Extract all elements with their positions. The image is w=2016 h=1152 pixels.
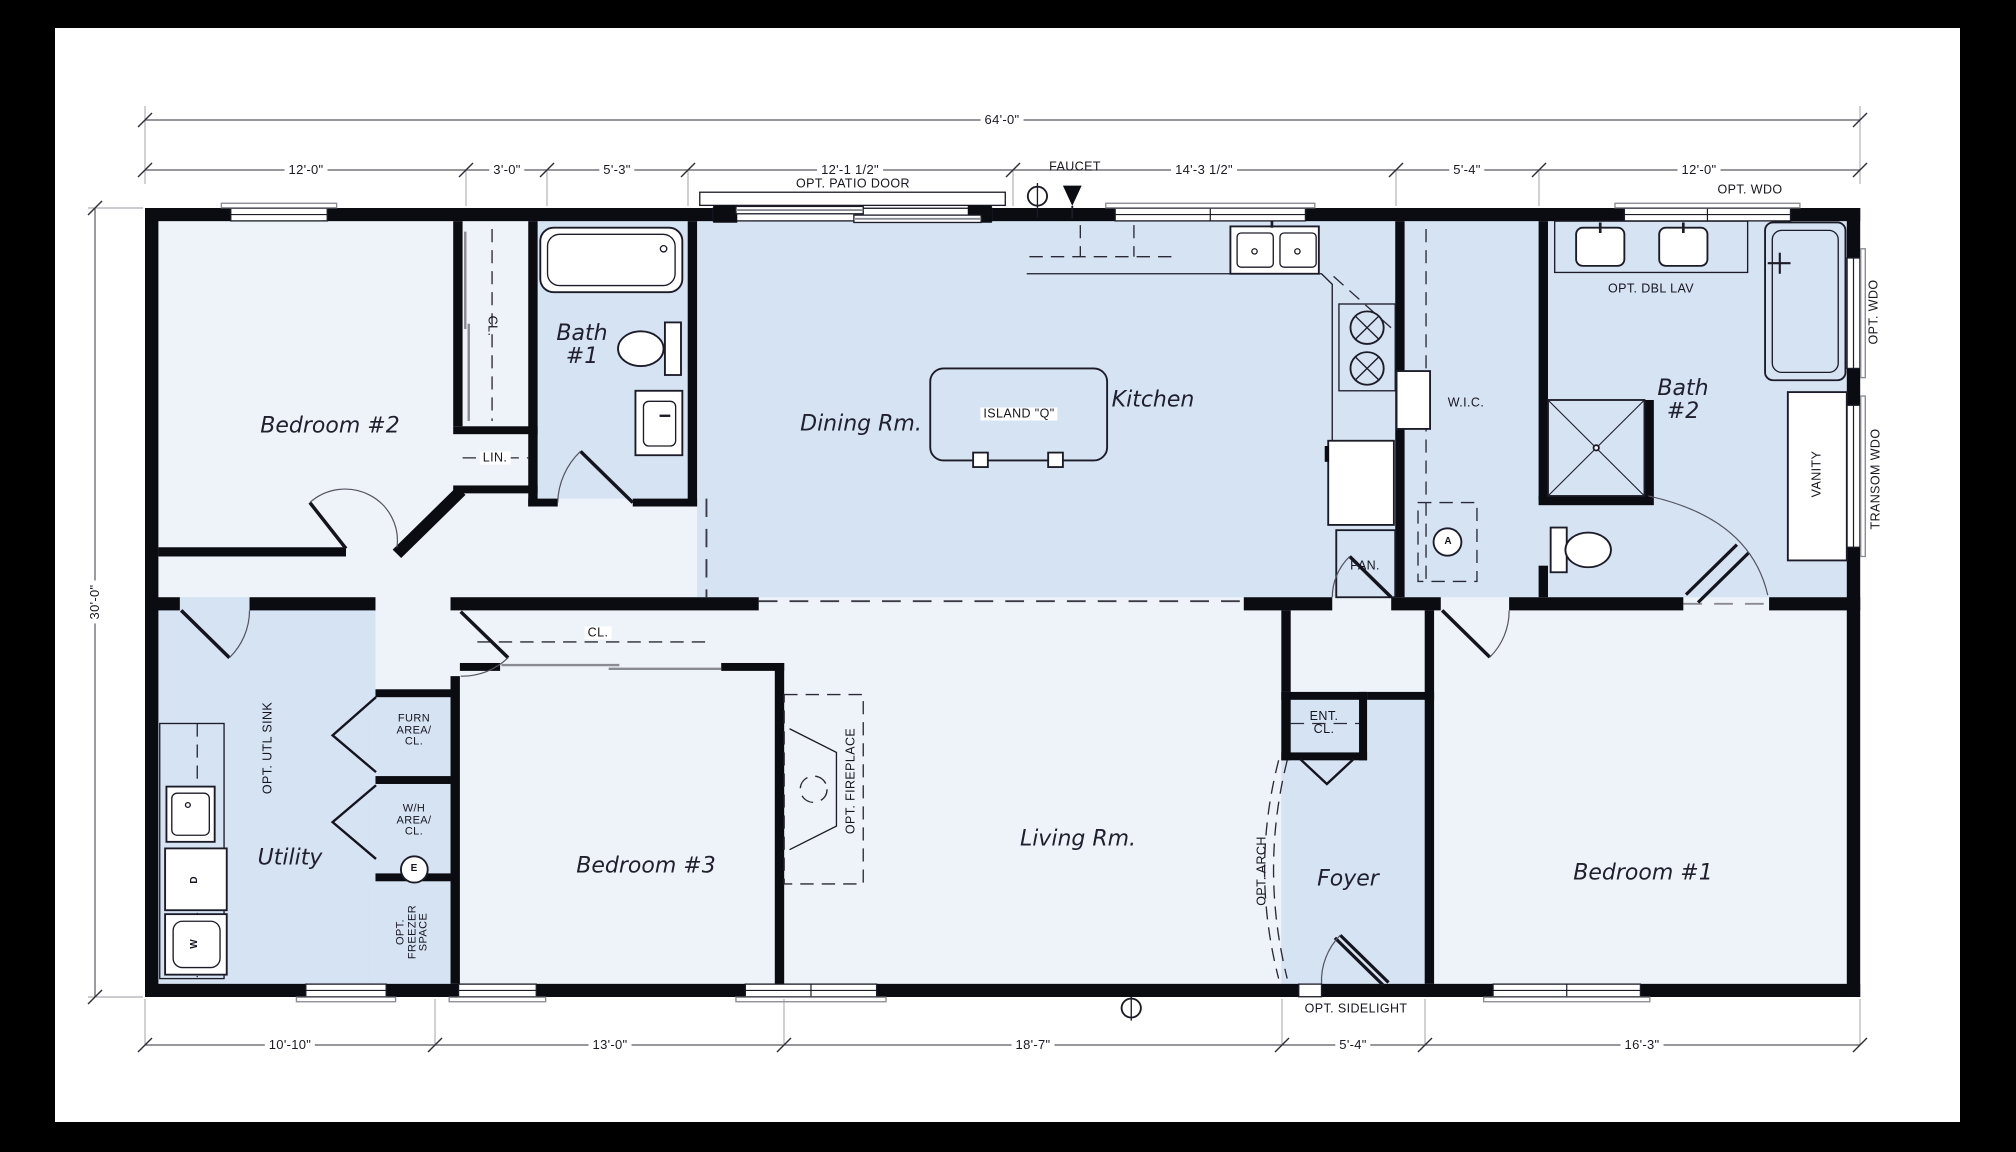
entry-closet-label: ENT. CL. <box>1310 710 1339 736</box>
opt-patio-door-label: OPT. PATIO DOOR <box>796 177 910 190</box>
dim-bottom-3: 18'-7" <box>1012 1038 1055 1052</box>
dryer-letter: D <box>190 876 201 883</box>
room-label-foyer: Foyer <box>1317 867 1379 890</box>
room-label-bath1: Bath #1 <box>556 322 607 368</box>
room-label-bedroom2: Bedroom #2 <box>260 414 399 437</box>
dim-top-7: 12'-0" <box>1678 163 1721 177</box>
wic-label: W.I.C. <box>1448 396 1484 409</box>
dim-top-1: 12'-0" <box>285 163 328 177</box>
linen-label: LIN. <box>480 451 511 464</box>
dim-top-6: 5'-4" <box>1449 163 1484 177</box>
opt-dbl-lav-label: OPT. DBL LAV <box>1608 282 1694 295</box>
opt-window-right-label: OPT. WDO <box>1867 279 1880 344</box>
furnace-area-label: FURN AREA/ CL. <box>396 714 431 749</box>
room-label-utility: Utility <box>258 846 323 869</box>
opt-sidelight-label: OPT. SIDELIGHT <box>1305 1002 1408 1015</box>
dim-bottom-5: 16'-3" <box>1621 1038 1664 1052</box>
closet-bedroom2-label: CL. <box>485 316 498 337</box>
dim-bottom-1: 10'-10" <box>265 1038 315 1052</box>
patio-door <box>700 192 1006 223</box>
faucet-label: FAUCET <box>1049 160 1101 173</box>
opt-arch-label: OPT. ARCH <box>1255 836 1268 906</box>
room-label-bedroom3: Bedroom #3 <box>576 854 715 877</box>
floorplan-page: 64'-0" 12'-0" 3'-0" 5'-3" 12'-1 1/2" 14'… <box>0 0 2016 1152</box>
opt-window-top-label: OPT. WDO <box>1717 183 1782 196</box>
opt-utility-sink-label: OPT. UTL SINK <box>261 702 274 794</box>
dim-overall-depth: 30'-0" <box>88 581 102 624</box>
washer-letter: W <box>190 939 201 948</box>
dim-top-3: 5'-3" <box>599 163 634 177</box>
dim-bottom-4: 5'-4" <box>1335 1038 1370 1052</box>
dim-overall-width: 64'-0" <box>981 113 1024 127</box>
room-label-living: Living Rm. <box>1020 827 1136 850</box>
dim-top-2: 3'-0" <box>489 163 524 177</box>
island-label: ISLAND "Q" <box>980 407 1057 420</box>
closet-bedroom3-label: CL. <box>585 626 612 639</box>
plan-geometry <box>145 183 1865 1021</box>
dim-top-4: 12'-1 1/2" <box>817 163 883 177</box>
opt-fireplace-label: OPT. FIREPLACE <box>844 728 857 834</box>
opt-freezer-label: OPT. FREEZER SPACE <box>396 905 431 959</box>
water-heater-area-label: W/H AREA/ CL. <box>396 804 431 839</box>
electrical-letter: E <box>411 864 418 875</box>
room-label-kitchen: Kitchen <box>1112 388 1195 411</box>
room-label-dining: Dining Rm. <box>800 412 922 435</box>
transom-window-label: TRANSOM WDO <box>1869 429 1882 530</box>
room-label-bedroom1: Bedroom #1 <box>1573 861 1712 884</box>
room-label-bath2: Bath #2 <box>1657 377 1708 423</box>
attic-access-letter: A <box>1444 537 1451 548</box>
pantry-label: PAN. <box>1350 559 1380 572</box>
dim-top-5: 14'-3 1/2" <box>1171 163 1237 177</box>
vanity-label: VANITY <box>1810 451 1823 498</box>
dim-bottom-2: 13'-0" <box>589 1038 632 1052</box>
